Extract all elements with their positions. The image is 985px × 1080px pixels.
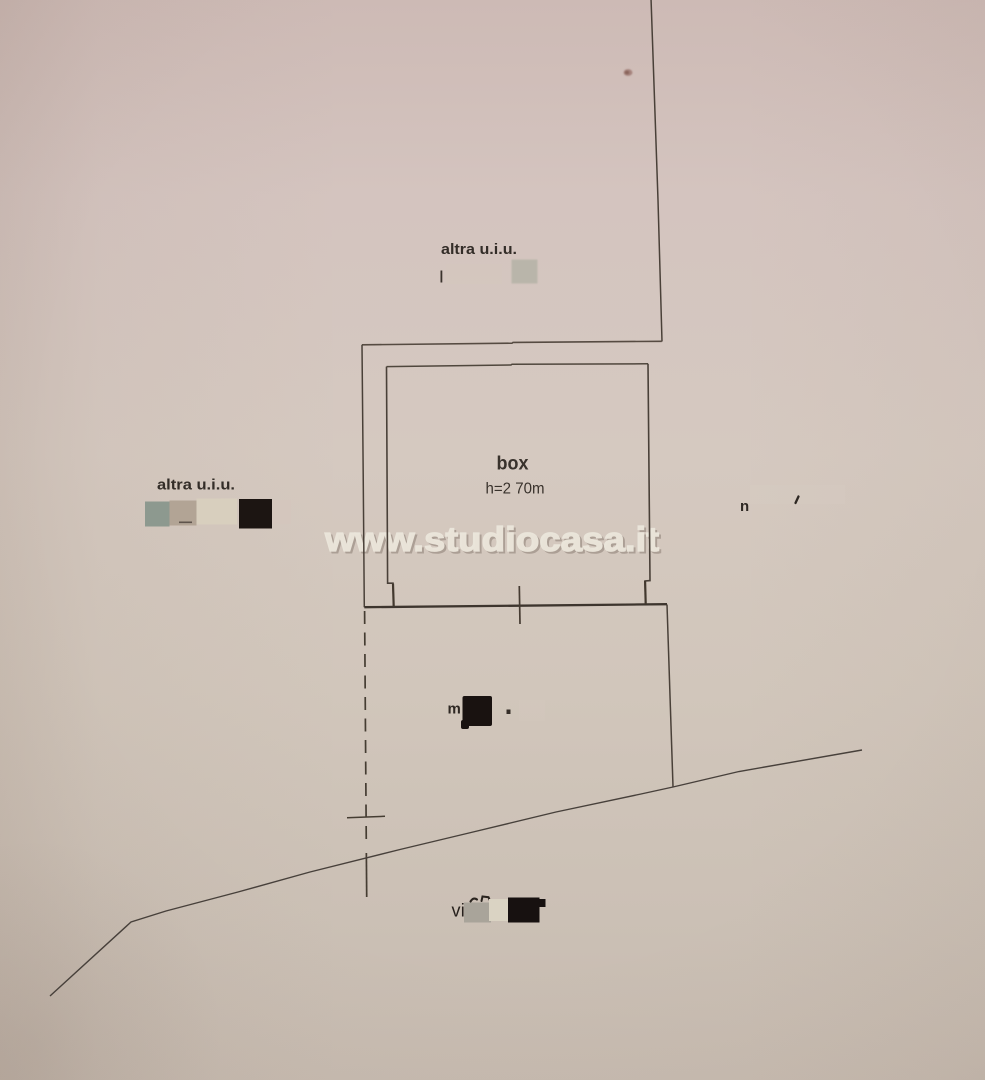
svg-text:n: n bbox=[740, 498, 749, 515]
svg-text:box: box bbox=[497, 453, 529, 475]
svg-text:m: m bbox=[448, 701, 461, 718]
svg-text:altra u.i.u.: altra u.i.u. bbox=[157, 477, 235, 494]
svg-text:altra u.i.u.: altra u.i.u. bbox=[441, 241, 517, 258]
svg-text:www.studiocasa.it: www.studiocasa.it bbox=[324, 521, 659, 559]
svg-text:h=2 70m: h=2 70m bbox=[486, 481, 545, 498]
